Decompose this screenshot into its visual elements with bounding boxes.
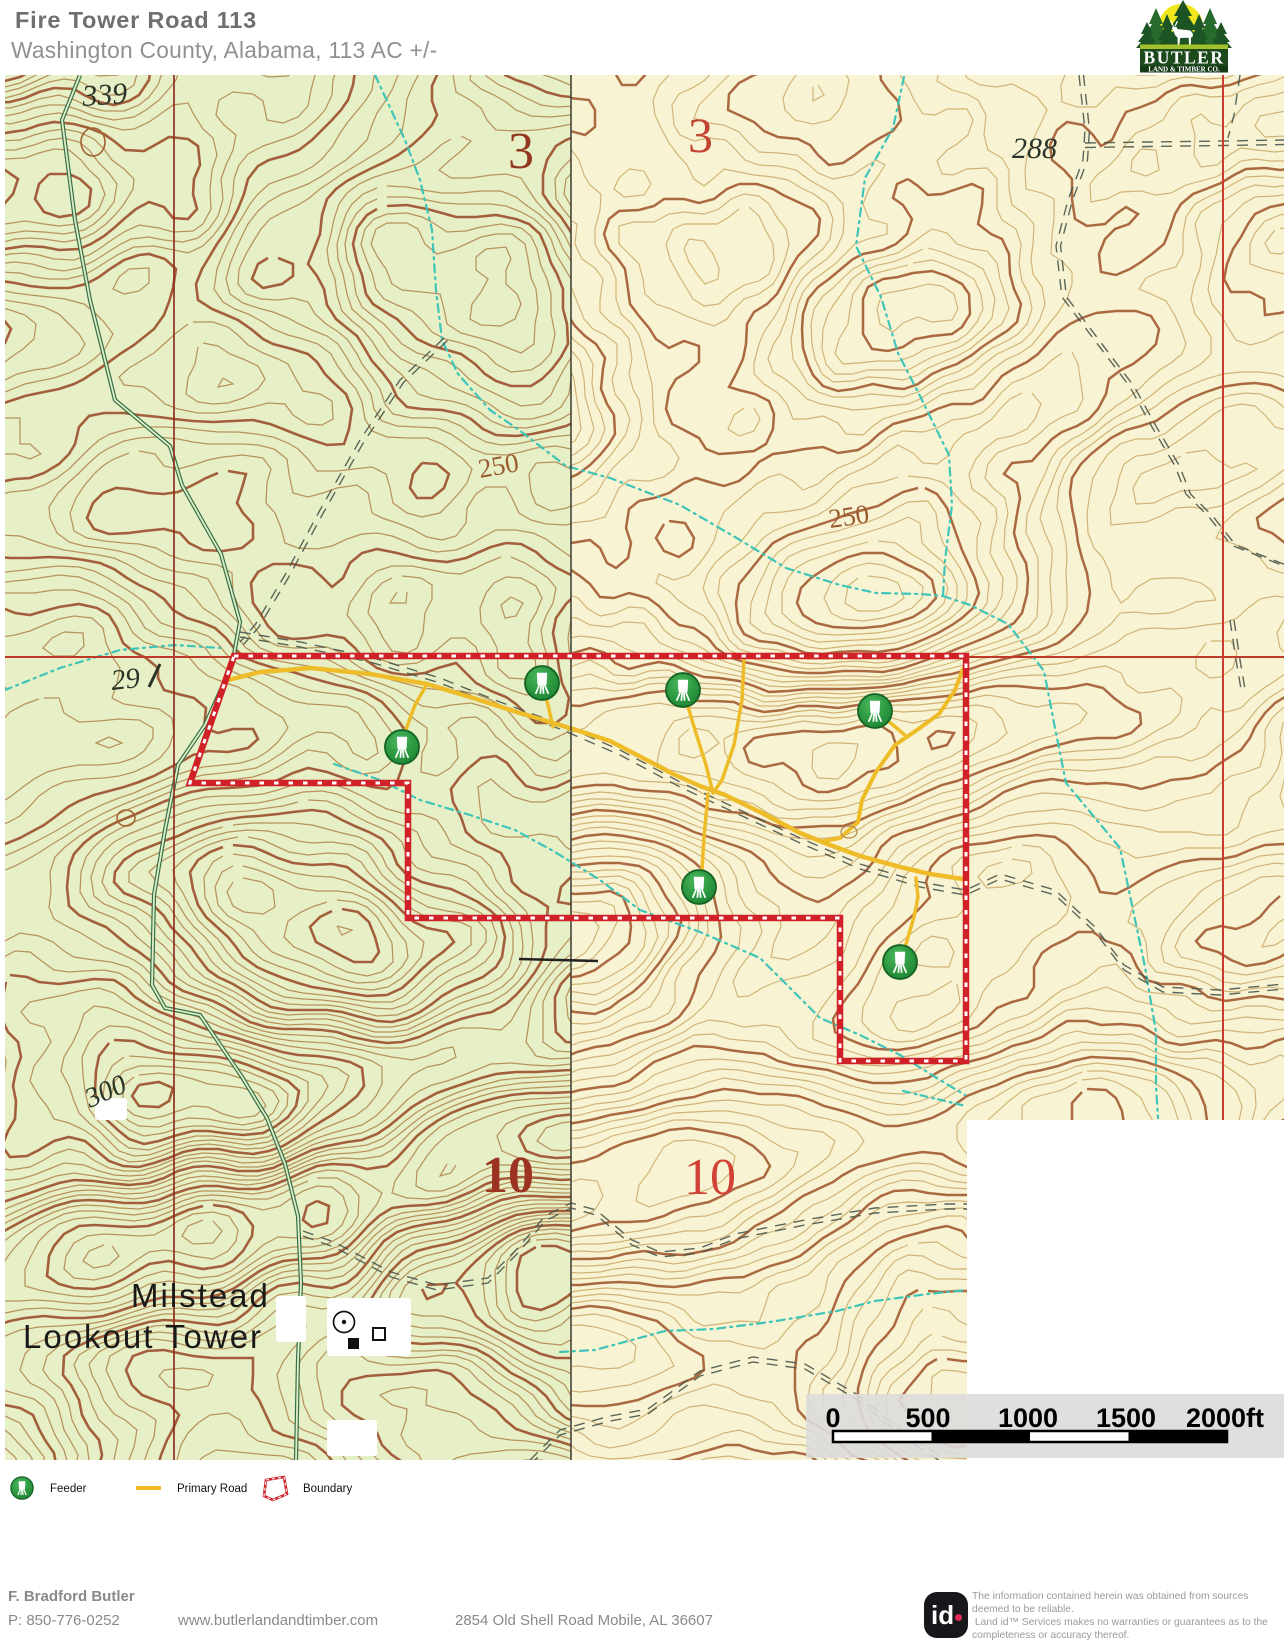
svg-text:1500: 1500	[1096, 1403, 1156, 1433]
svg-text:BUTLER: BUTLER	[1144, 48, 1225, 68]
svg-text:0: 0	[825, 1403, 840, 1433]
svg-text:288: 288	[1012, 132, 1057, 165]
svg-text:Primary Road: Primary Road	[177, 1483, 247, 1495]
svg-text:Milstead: Milstead	[131, 1277, 270, 1314]
svg-text:Feeder: Feeder	[50, 1483, 87, 1495]
svg-text:3: 3	[688, 107, 713, 163]
svg-text:10: 10	[684, 1149, 736, 1206]
svg-text:Boundary: Boundary	[303, 1483, 352, 1495]
svg-text:3: 3	[508, 123, 534, 180]
svg-text:250: 250	[827, 499, 871, 534]
svg-text:339: 339	[80, 77, 128, 113]
svg-text:LAND & TIMBER CO.: LAND & TIMBER CO.	[1148, 66, 1220, 74]
svg-text:Lookout Tower: Lookout Tower	[23, 1318, 263, 1355]
svg-text:1000: 1000	[998, 1403, 1058, 1433]
svg-text:2000ft: 2000ft	[1186, 1403, 1264, 1433]
svg-text:500: 500	[905, 1403, 950, 1433]
svg-text:29: 29	[109, 662, 142, 697]
svg-text:10: 10	[482, 1147, 534, 1204]
